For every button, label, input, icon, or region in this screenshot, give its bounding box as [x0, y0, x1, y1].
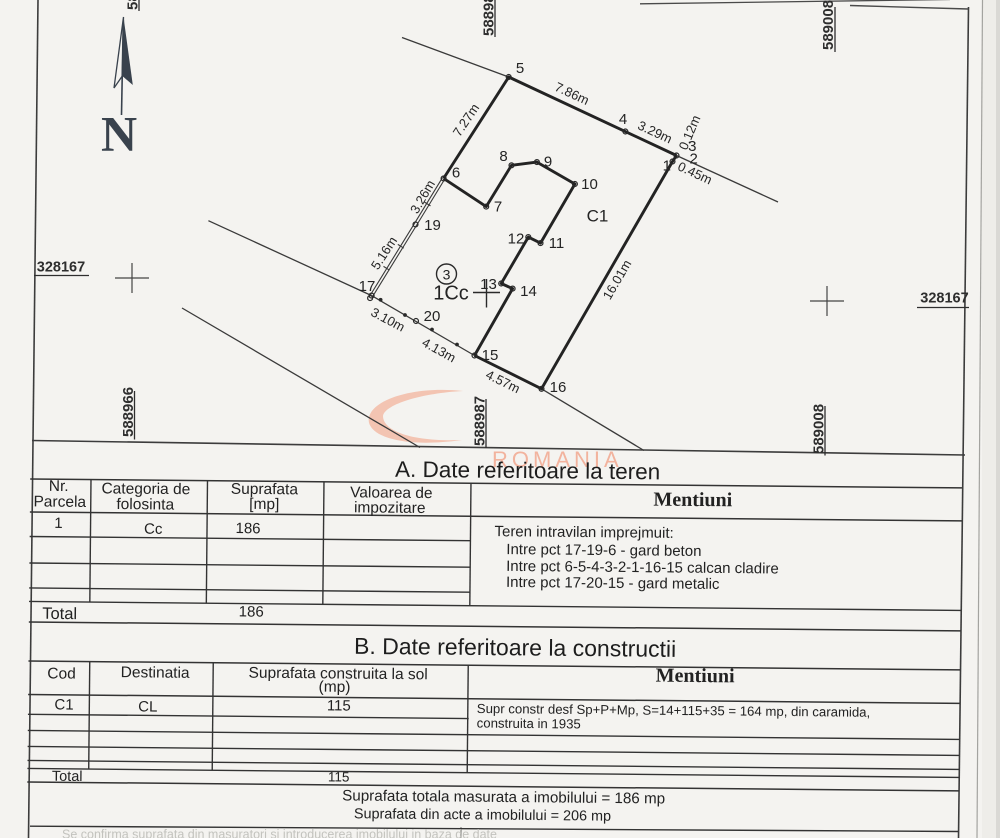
- svg-text:CL: CL: [138, 698, 157, 715]
- svg-text:Mentiuni: Mentiuni: [656, 665, 736, 688]
- svg-text:115: 115: [327, 697, 351, 714]
- svg-text:C1: C1: [587, 207, 609, 226]
- svg-text:Suprafata totala masurata a im: Suprafata totala masurata a imobilului =…: [342, 787, 665, 807]
- svg-text:1Cc: 1Cc: [433, 283, 469, 305]
- svg-text:328167: 328167: [920, 291, 968, 307]
- svg-text:B. Date referitoare la constru: B. Date referitoare la constructii: [354, 633, 676, 662]
- svg-text:Teren intravilan imprejmuit:: Teren intravilan imprejmuit:: [494, 523, 673, 542]
- svg-text:Nr.: Nr.: [49, 478, 69, 495]
- svg-text:13: 13: [480, 276, 497, 293]
- svg-text:impozitare: impozitare: [354, 499, 426, 517]
- svg-text:186: 186: [235, 520, 260, 537]
- svg-text:11: 11: [549, 235, 565, 252]
- svg-text:15: 15: [482, 347, 499, 364]
- svg-text:17: 17: [359, 278, 376, 295]
- svg-text:5: 5: [516, 60, 524, 77]
- svg-text:10: 10: [581, 176, 598, 193]
- svg-text:Intre pct 17-19-6 - gard beton: Intre pct 17-19-6 - gard beton: [506, 541, 701, 560]
- svg-text:Se confirma suprafata din masu: Se confirma suprafata din masuratori si …: [62, 828, 497, 838]
- svg-text:Intre pct 17-20-15 - gard meta: Intre pct 17-20-15 - gard metalic: [506, 574, 720, 593]
- svg-text:3: 3: [443, 267, 451, 283]
- svg-text:7: 7: [494, 199, 502, 216]
- svg-text:Cc: Cc: [144, 521, 163, 538]
- svg-text:Parcela: Parcela: [33, 493, 86, 511]
- svg-text:20: 20: [424, 308, 441, 325]
- svg-text:folosinta: folosinta: [116, 496, 174, 514]
- svg-text:6: 6: [452, 165, 460, 182]
- svg-text:construita in 1935: construita in 1935: [477, 715, 581, 731]
- svg-text:(mp): (mp): [319, 679, 351, 696]
- svg-text:Destinatia: Destinatia: [121, 664, 190, 682]
- svg-text:A. Date referitoare la teren: A. Date referitoare la teren: [395, 457, 660, 485]
- svg-text:14: 14: [520, 283, 537, 300]
- svg-text:1: 1: [663, 157, 671, 174]
- svg-text:186: 186: [239, 603, 264, 620]
- svg-text:Suprafata din acte a imobilulu: Suprafata din acte a imobilului = 206 mp: [354, 806, 611, 824]
- svg-text:115: 115: [328, 769, 350, 784]
- svg-text:Total: Total: [42, 605, 77, 623]
- svg-text:8: 8: [499, 148, 507, 165]
- svg-text:[mp]: [mp]: [249, 496, 279, 513]
- svg-text:1: 1: [54, 515, 63, 532]
- svg-text:16: 16: [550, 379, 567, 396]
- svg-text:19: 19: [424, 217, 441, 234]
- svg-text:Total: Total: [52, 769, 83, 785]
- svg-text:328167: 328167: [37, 260, 85, 276]
- svg-text:N: N: [101, 106, 137, 162]
- svg-text:12: 12: [508, 231, 525, 248]
- svg-text:9: 9: [544, 154, 552, 171]
- svg-text:C1: C1: [54, 696, 73, 713]
- svg-text:4: 4: [619, 111, 627, 128]
- svg-text:Cod: Cod: [47, 665, 76, 682]
- svg-text:Mentiuni: Mentiuni: [653, 489, 733, 512]
